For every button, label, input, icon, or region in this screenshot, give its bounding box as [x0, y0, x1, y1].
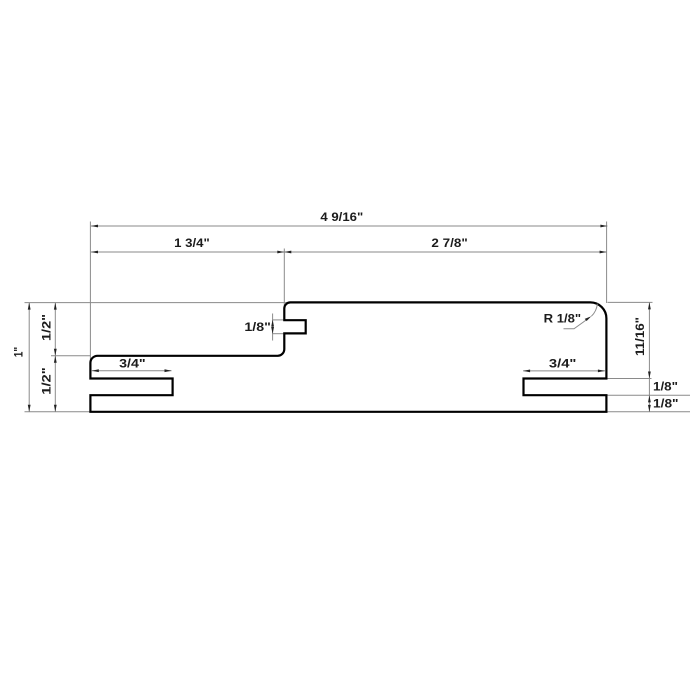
svg-text:1/2": 1/2" — [41, 314, 54, 341]
svg-text:3/4": 3/4" — [119, 358, 146, 371]
svg-text:1/8": 1/8" — [653, 398, 679, 411]
svg-text:1": 1" — [13, 347, 26, 358]
svg-text:1/8": 1/8" — [653, 381, 678, 394]
svg-text:1/8": 1/8" — [244, 321, 271, 334]
svg-text:4 9/16": 4 9/16" — [320, 211, 363, 224]
svg-text:R 1/8": R 1/8" — [544, 313, 582, 326]
svg-text:11/16": 11/16" — [634, 317, 647, 356]
svg-text:3/4": 3/4" — [549, 358, 577, 371]
svg-text:1/2": 1/2" — [41, 367, 54, 395]
svg-text:2 7/8": 2 7/8" — [431, 237, 467, 250]
svg-text:1 3/4": 1 3/4" — [174, 237, 210, 250]
